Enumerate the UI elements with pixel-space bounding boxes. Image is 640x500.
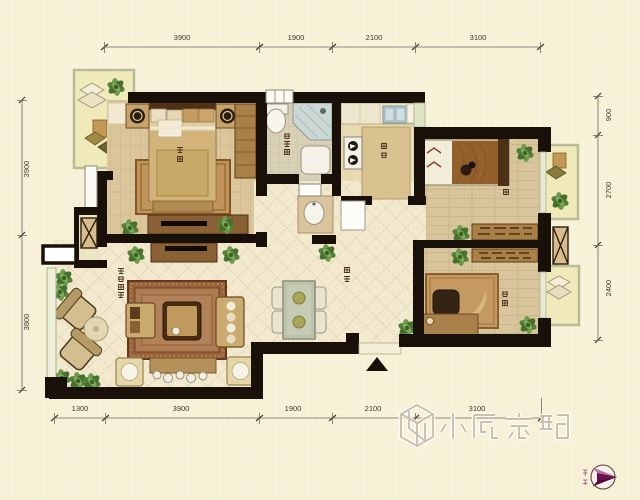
svg-text:3100: 3100 xyxy=(470,33,487,42)
svg-text:1300: 1300 xyxy=(72,404,89,413)
svg-text:2400: 2400 xyxy=(604,280,613,297)
svg-text:1900: 1900 xyxy=(285,404,302,413)
svg-text:2100: 2100 xyxy=(365,404,382,413)
svg-text:3900: 3900 xyxy=(173,404,190,413)
svg-text:2700: 2700 xyxy=(604,182,613,199)
svg-text:1900: 1900 xyxy=(288,33,305,42)
svg-text:900: 900 xyxy=(604,109,613,122)
svg-text:2100: 2100 xyxy=(366,33,383,42)
svg-text:3800: 3800 xyxy=(22,314,31,331)
svg-text:3100: 3100 xyxy=(469,404,486,413)
svg-text:3900: 3900 xyxy=(22,161,31,178)
svg-text:3900: 3900 xyxy=(174,33,191,42)
